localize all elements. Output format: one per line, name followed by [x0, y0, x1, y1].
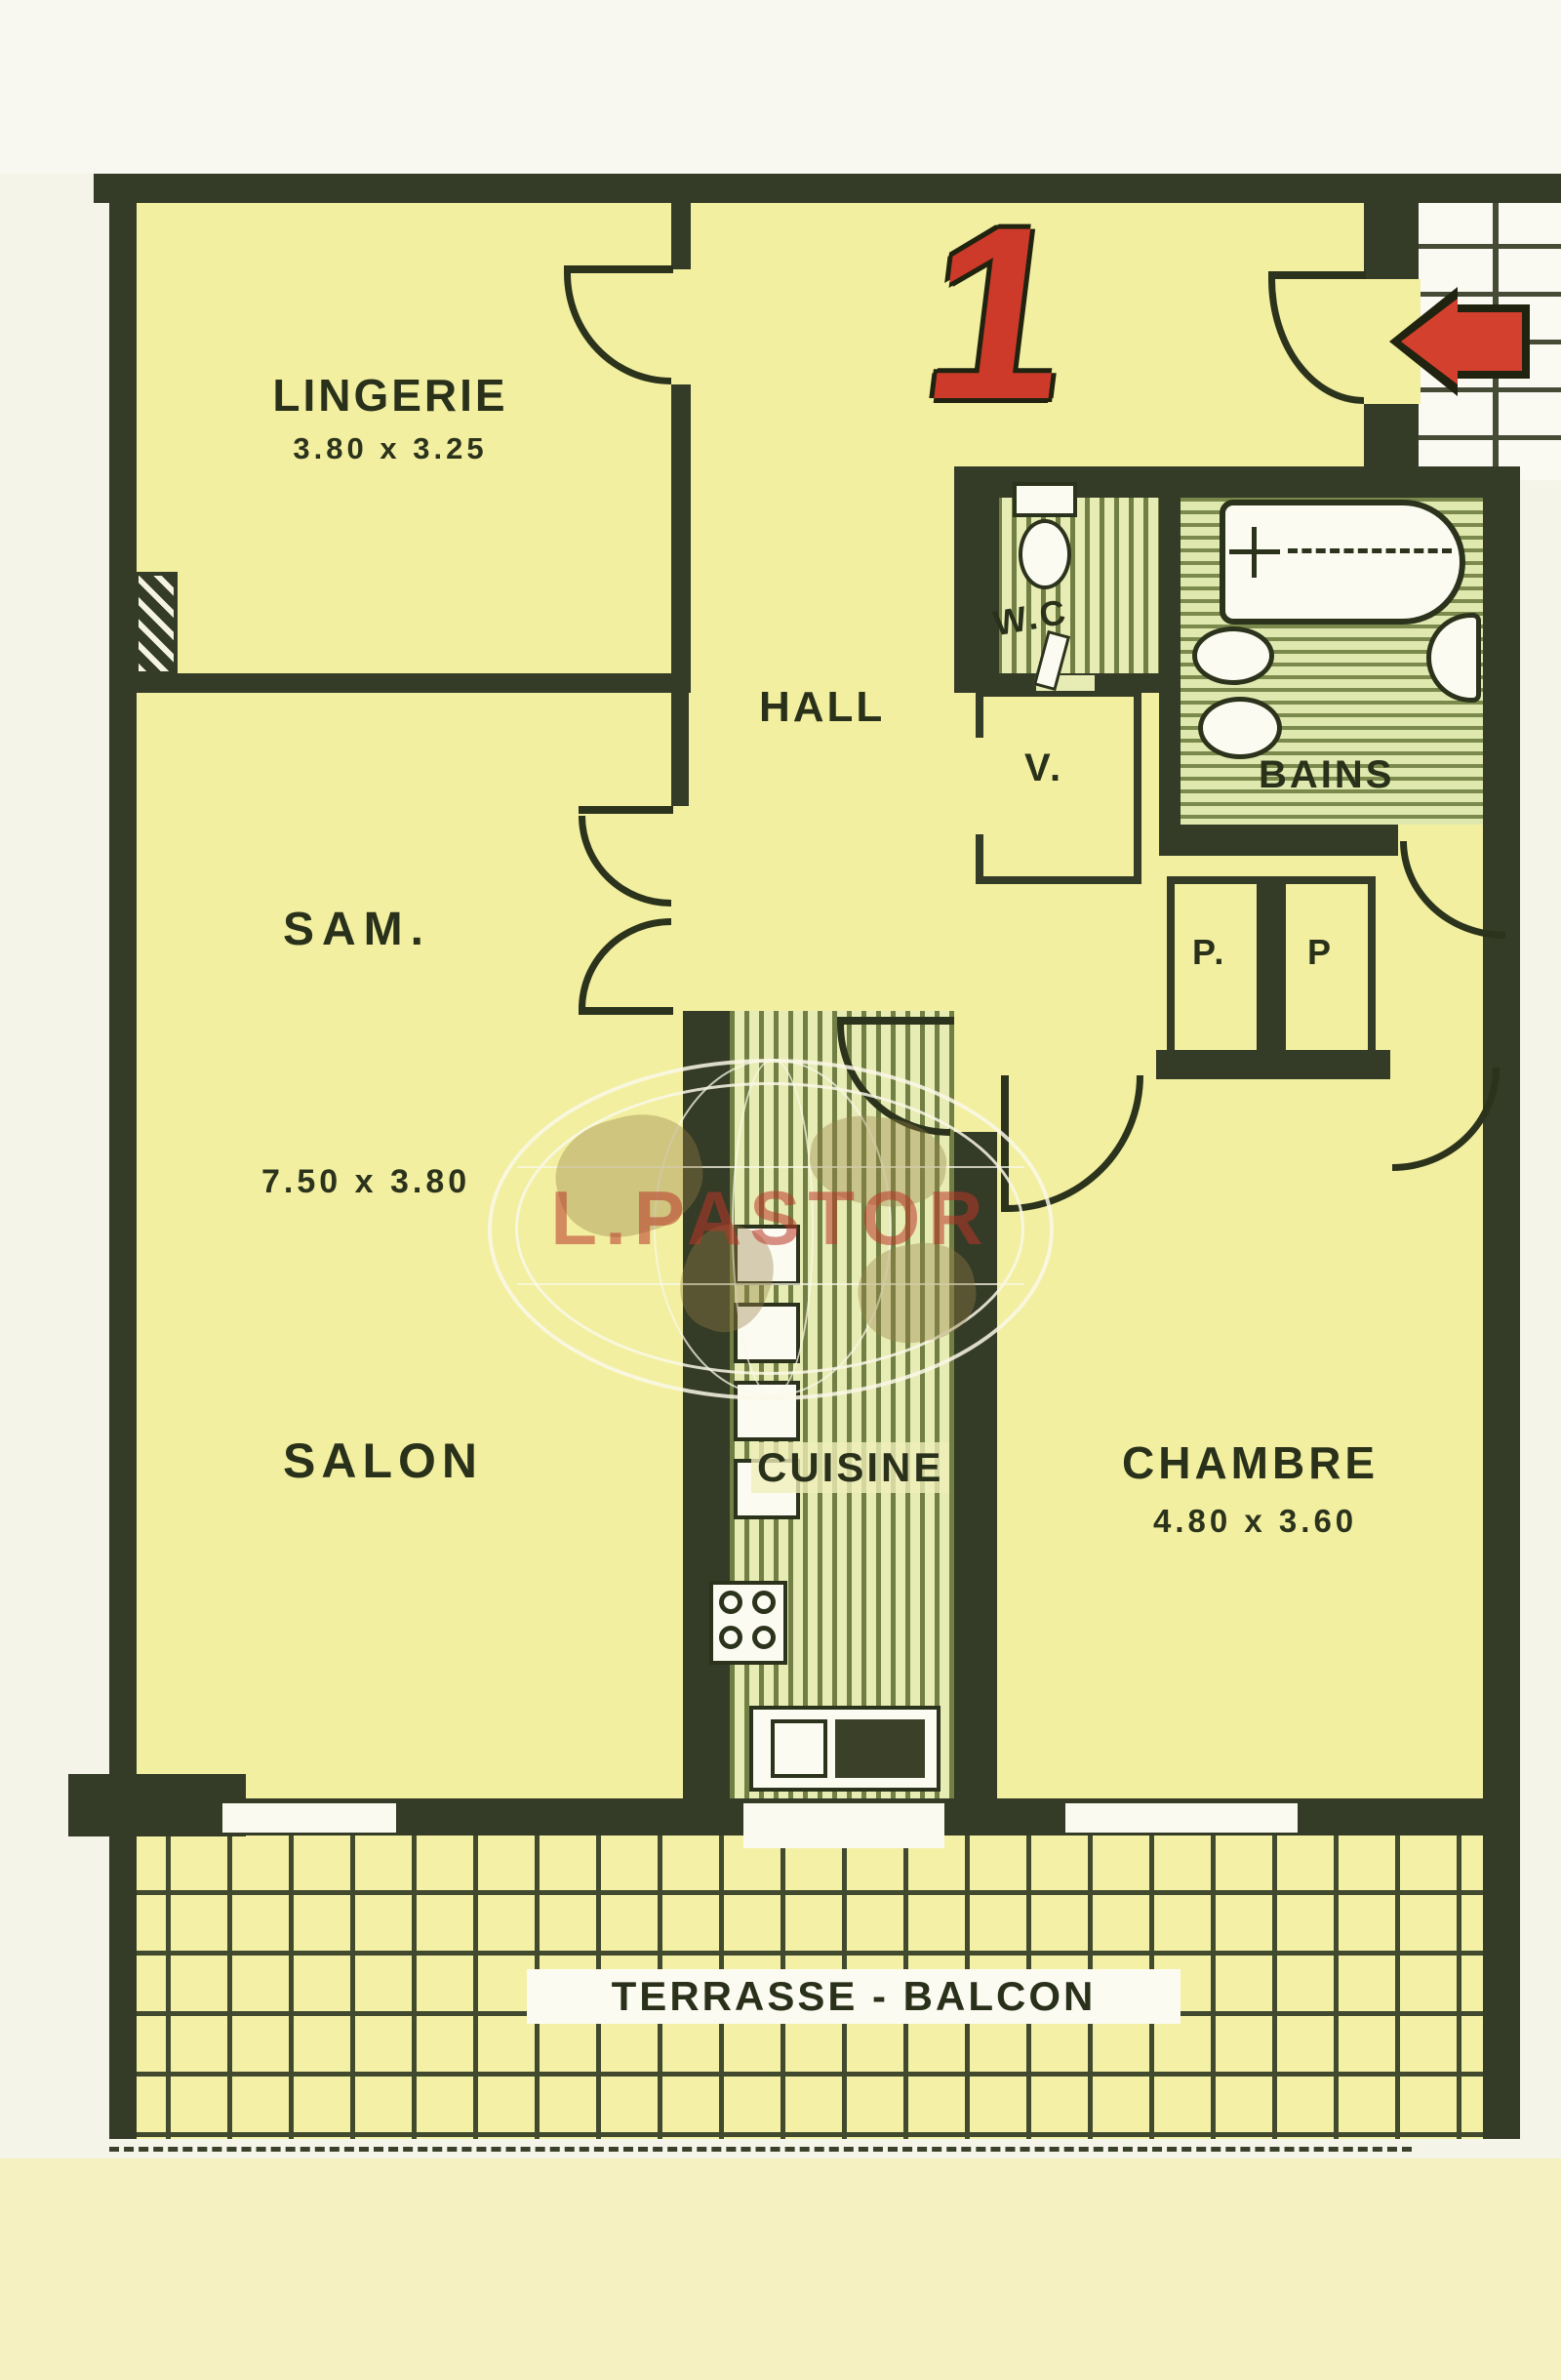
chambre-dims: 4.80 x 3.60: [1153, 1503, 1357, 1540]
salon-label: SALON: [283, 1432, 483, 1489]
wall-bains-south: [1159, 825, 1398, 856]
chimney-block: [135, 572, 178, 675]
terrace-boundary-dashed: [109, 2147, 1412, 2152]
stove-burner: [719, 1591, 742, 1614]
kitchen-balcony-door: [743, 1803, 944, 1848]
toilet-tank-icon: [1013, 482, 1077, 517]
sam-dims: 7.50 x 3.80: [261, 1163, 470, 1201]
double-door-top-leaf: [579, 806, 673, 814]
wall-p-right: [1368, 876, 1376, 1062]
wall-lingerie-east-upper: [671, 201, 691, 269]
sink-drainer: [835, 1719, 925, 1778]
stove-icon: [709, 1581, 787, 1665]
outer-margin-top: [0, 0, 1561, 174]
wall-p-middle: [1257, 876, 1286, 1062]
sam-label: SAM.: [283, 903, 431, 956]
chambre-label: CHAMBRE: [1122, 1436, 1379, 1489]
washbasin2-icon: [1198, 697, 1282, 759]
wall-top: [94, 174, 1561, 203]
hall-label: HALL: [759, 683, 885, 732]
entrance-door-leaf: [1268, 271, 1366, 279]
wall-hall-wc: [954, 466, 999, 693]
stove-burner: [752, 1626, 776, 1649]
kitchen-counter-1: [734, 1225, 800, 1285]
bathtub-cross-h: [1229, 549, 1280, 554]
wall-p-south: [1156, 1050, 1390, 1079]
wall-v-right: [1134, 689, 1141, 884]
below-terrace-area: [0, 2158, 1561, 2380]
wall-stair-upper: [1364, 201, 1419, 279]
wall-lingerie-east-lower: [671, 384, 691, 683]
washbasin-icon: [1192, 626, 1274, 685]
wall-sam-hall: [671, 693, 689, 806]
closet-v-label: V.: [1024, 746, 1063, 790]
wall-wc-bains-divider: [1159, 498, 1181, 834]
closet-p-right-label: P: [1307, 932, 1334, 973]
cuisine-door-leaf: [837, 1017, 954, 1025]
sink-unit-icon: [749, 1706, 941, 1792]
stove-burner: [719, 1626, 742, 1649]
kitchen-counter-2: [734, 1303, 800, 1363]
lingerie-label: LINGERIE: [234, 369, 546, 422]
wall-p-left: [1167, 876, 1175, 1062]
floor-plan: 1 LINGERIE 3.80 x 3.25 HALL W.C BAINS V.…: [0, 0, 1561, 2380]
salon-balcony-door: [222, 1803, 396, 1833]
chambre-balcony-door: [1065, 1803, 1298, 1833]
lingerie-dims: 3.80 x 3.25: [234, 431, 546, 466]
wall-kitchen-west: [683, 1011, 730, 1801]
kitchen-counter-3: [734, 1381, 800, 1441]
wall-lingerie-south: [135, 673, 691, 693]
wall-v-left-upper: [976, 689, 983, 738]
wall-right: [1483, 466, 1520, 2139]
wall-v-bottom: [976, 876, 1141, 884]
lingerie-door-leaf: [564, 265, 673, 273]
wall-bottom-left-block: [68, 1774, 246, 1836]
bathtub-centerline: [1288, 548, 1452, 553]
bains-label: BAINS: [1259, 753, 1394, 797]
sink-basin: [771, 1719, 827, 1778]
terrasse-label: TERRASSE - BALCON: [527, 1969, 1181, 2024]
stove-burner: [752, 1591, 776, 1614]
wall-kitchen-east: [954, 1132, 997, 1801]
cuisine-label: CUISINE: [751, 1442, 949, 1493]
wall-left: [109, 174, 137, 2139]
closet-p-left-label: P.: [1192, 932, 1226, 973]
toilet-bowl-icon: [1019, 519, 1071, 589]
